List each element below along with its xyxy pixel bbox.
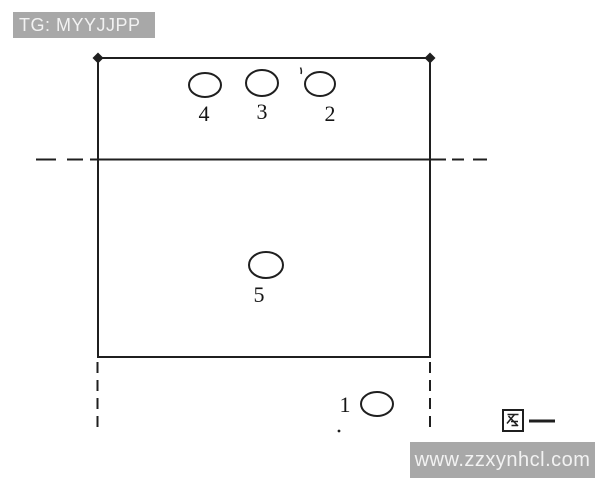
position-label-1: 1: [340, 392, 351, 417]
court-diagram: 43251: [0, 0, 600, 480]
figure-canvas: TG: MYYJJPP 43251 www.zzxynhcl.com: [0, 0, 600, 480]
stray-dot-mark: [338, 430, 341, 433]
position-circle-3: [246, 70, 278, 96]
position-label-2: 2: [325, 101, 336, 126]
watermark-bottom: www.zzxynhcl.com: [410, 442, 595, 478]
figure-caption: [503, 410, 555, 431]
stray-tick-mark: [301, 68, 302, 75]
position-label-4: 4: [199, 101, 210, 126]
corner-marker-right-icon: [425, 53, 436, 64]
position-circle-4: [189, 73, 221, 97]
position-label-5: 5: [254, 282, 265, 307]
caption-tu-glyph-strokes: [507, 415, 519, 427]
corner-marker-left-icon: [93, 53, 104, 64]
position-label-3: 3: [257, 99, 268, 124]
position-circle-2: [305, 72, 335, 96]
position-markers: 43251: [189, 70, 393, 417]
position-circle-1: [361, 392, 393, 416]
position-circle-5: [249, 252, 283, 278]
